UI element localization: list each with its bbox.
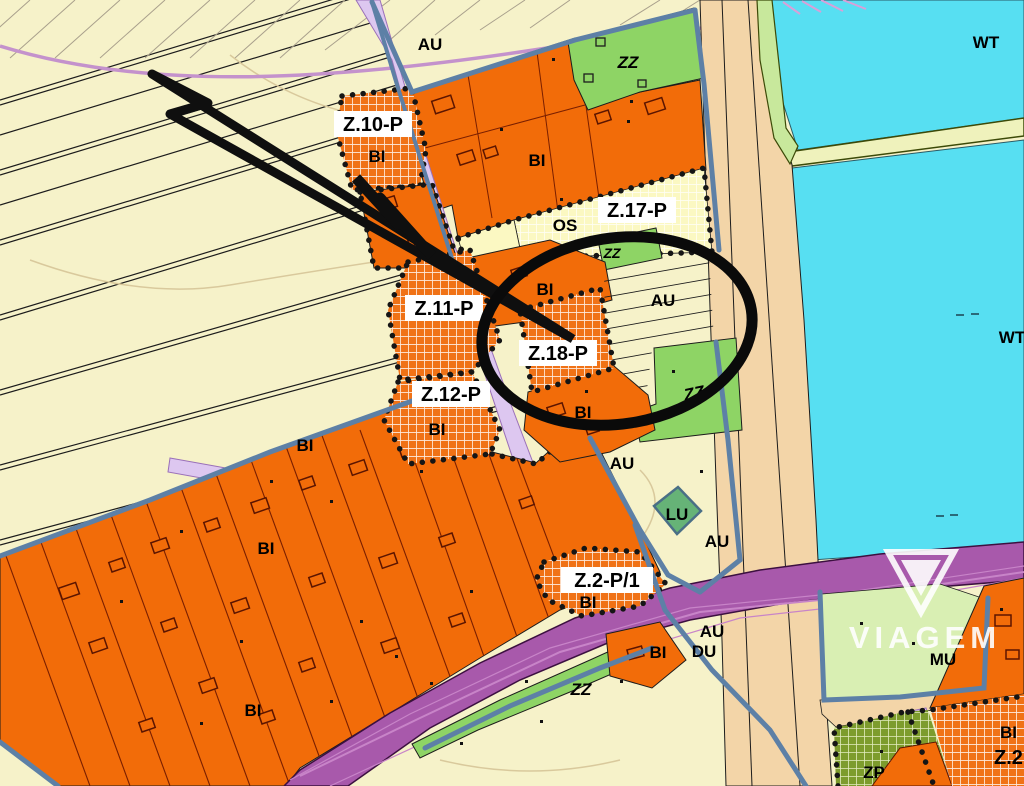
label-wt-right: WT bbox=[999, 328, 1024, 347]
label-au-lower: AU bbox=[705, 532, 730, 551]
label-wt-top: WT bbox=[973, 33, 1000, 52]
label-bi-upper-mass: BI bbox=[297, 436, 314, 455]
label-os: OS bbox=[553, 216, 578, 235]
label-z2p1: Z.2-P/1 bbox=[574, 570, 640, 592]
label-lu: LU bbox=[666, 505, 689, 524]
label-bi-edge: BI bbox=[1000, 723, 1017, 742]
label-bi-top: BI bbox=[529, 151, 546, 170]
map-canvas: AU ZZ WT Z.10-P BI BI OS Z.17-P ZZ BI AU… bbox=[0, 0, 1024, 786]
zoning-map: AU ZZ WT Z.10-P BI BI OS Z.17-P ZZ BI AU… bbox=[0, 0, 1024, 786]
label-z18p: Z.18-P bbox=[528, 343, 588, 365]
label-bi-mid: BI bbox=[537, 280, 554, 299]
label-au-center: AU bbox=[610, 454, 635, 473]
label-bi-z2p1: BI bbox=[580, 593, 597, 612]
label-au-top: AU bbox=[418, 35, 443, 54]
label-zp: ZP bbox=[863, 763, 885, 782]
label-bi-bottom: BI bbox=[245, 701, 262, 720]
label-du: DU bbox=[692, 642, 717, 661]
label-z11p: Z.11-P bbox=[415, 298, 474, 320]
label-zz-bottom: ZZ bbox=[570, 680, 592, 699]
viagem-watermark-text: VIAGEM bbox=[849, 620, 1001, 655]
label-z2-edge: Z.2 bbox=[994, 747, 1023, 769]
label-au-strips: AU bbox=[651, 291, 676, 310]
label-bi-z10: BI bbox=[369, 147, 386, 166]
label-bi-mass: BI bbox=[258, 539, 275, 558]
label-bi-small-right: BI bbox=[650, 643, 667, 662]
label-bi-z12: BI bbox=[429, 420, 446, 439]
label-zz-mid: ZZ bbox=[602, 245, 621, 261]
label-z10p: Z.10-P bbox=[343, 114, 403, 136]
label-zz-top: ZZ bbox=[617, 53, 639, 72]
label-z12p: Z.12-P bbox=[421, 384, 481, 406]
label-au-road: AU bbox=[700, 622, 725, 641]
label-z17p: Z.17-P bbox=[607, 200, 667, 222]
